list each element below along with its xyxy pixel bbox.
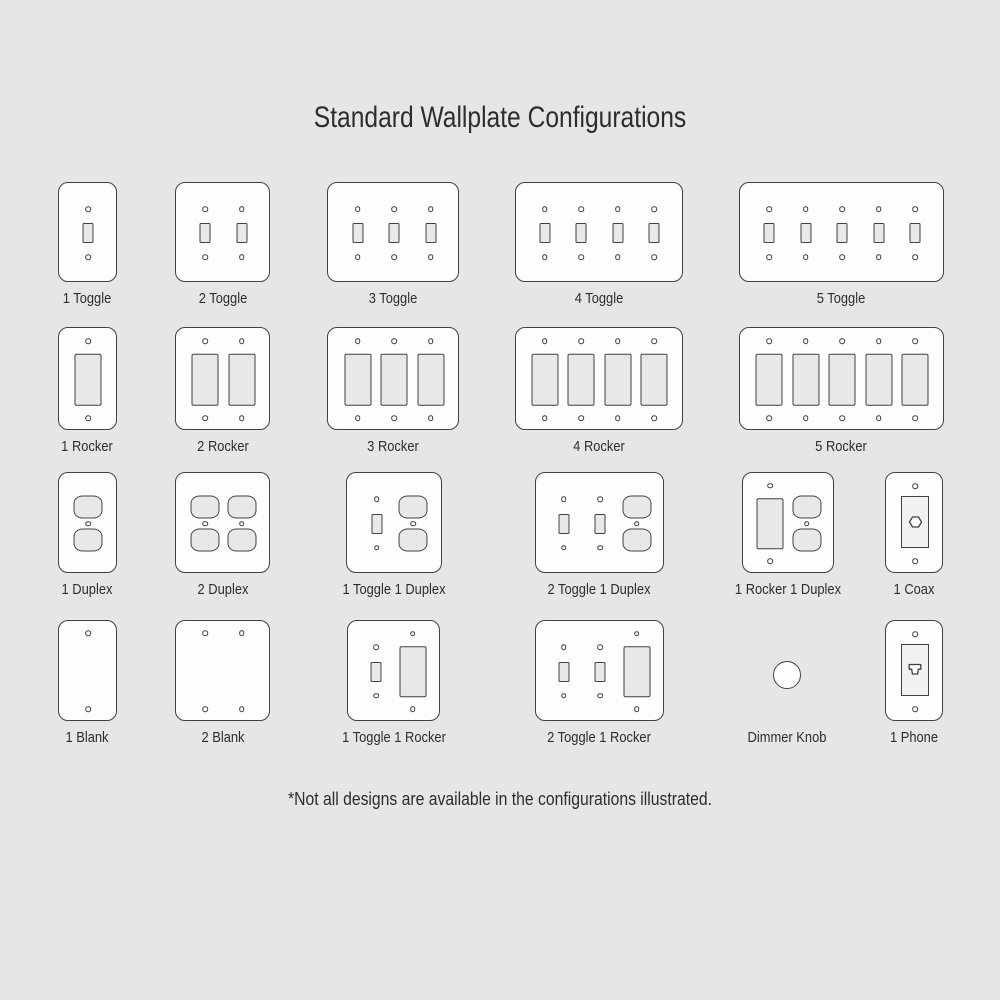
screw-hole-icon	[803, 415, 809, 421]
plate-label-2-toggle-1-duplex: 2 Toggle 1 Duplex	[504, 581, 693, 598]
screw-hole-icon	[391, 254, 397, 260]
screw-hole-icon	[542, 415, 548, 421]
toggle-switch	[764, 223, 775, 243]
wallplate-1-toggle	[58, 182, 117, 282]
screw-hole-icon	[597, 496, 603, 502]
plate-label-5-toggle: 5 Toggle	[746, 290, 935, 307]
screw-hole-icon	[803, 206, 809, 212]
screw-hole-icon	[373, 693, 379, 699]
screw-hole-icon	[615, 338, 621, 344]
screw-hole-icon	[85, 254, 91, 260]
rocker-switch	[417, 353, 444, 406]
duplex-outlet-bottom	[74, 529, 103, 552]
plate-label-3-rocker: 3 Rocker	[298, 438, 487, 455]
screw-hole-icon	[202, 707, 208, 713]
screw-hole-icon	[766, 338, 772, 344]
screw-hole-icon	[239, 707, 245, 713]
rocker-switch	[344, 353, 371, 406]
screw-hole-icon	[355, 338, 361, 344]
toggle-switch	[800, 223, 811, 243]
duplex-outlet-top	[792, 496, 821, 519]
screw-hole-icon	[912, 415, 918, 421]
screw-hole-icon	[839, 415, 845, 421]
plate-label-1-phone: 1 Phone	[819, 729, 1000, 746]
plate-label-2-toggle-1-rocker: 2 Toggle 1 Rocker	[504, 729, 693, 746]
screw-hole-icon	[597, 644, 603, 650]
screw-hole-icon	[597, 545, 603, 551]
wallplate-5-rocker	[739, 327, 944, 430]
screw-hole-icon	[391, 338, 397, 344]
plate-label-4-rocker: 4 Rocker	[504, 438, 693, 455]
screw-hole-icon	[912, 338, 918, 344]
coax-insert	[901, 496, 929, 548]
screw-hole-icon	[804, 521, 810, 527]
screw-hole-icon	[374, 496, 380, 502]
screw-hole-icon	[202, 415, 208, 421]
screw-hole-icon	[839, 338, 845, 344]
rocker-switch	[531, 353, 558, 406]
rocker-switch	[902, 353, 929, 406]
screw-hole-icon	[651, 338, 657, 344]
wallplate-1-phone	[885, 620, 943, 721]
wallplate-1-rocker	[58, 327, 117, 430]
toggle-switch	[558, 662, 569, 682]
screw-hole-icon	[239, 254, 245, 260]
screw-hole-icon	[542, 254, 548, 260]
screw-hole-icon	[85, 338, 91, 344]
toggle-switch	[352, 223, 363, 243]
plate-label-1-toggle-1-rocker: 1 Toggle 1 Rocker	[299, 729, 488, 746]
duplex-outlet-bottom	[792, 529, 821, 552]
toggle-switch	[236, 223, 247, 243]
toggle-switch	[910, 223, 921, 243]
wallplate-1-duplex	[58, 472, 117, 573]
screw-hole-icon	[239, 206, 245, 212]
screw-hole-icon	[202, 630, 208, 636]
screw-hole-icon	[561, 644, 567, 650]
duplex-outlet-top	[227, 496, 256, 519]
screw-hole-icon	[428, 206, 434, 212]
screw-hole-icon	[651, 254, 657, 260]
wallplate-1-toggle-1-duplex	[346, 472, 442, 573]
screw-hole-icon	[578, 415, 584, 421]
screw-hole-icon	[876, 254, 882, 260]
screw-hole-icon	[651, 206, 657, 212]
toggle-switch	[371, 662, 382, 682]
plate-label-1-toggle-1-duplex: 1 Toggle 1 Duplex	[299, 581, 488, 598]
screw-hole-icon	[578, 254, 584, 260]
rocker-switch	[756, 353, 783, 406]
screw-hole-icon	[202, 254, 208, 260]
duplex-outlet-top	[399, 496, 428, 519]
screw-hole-icon	[239, 338, 245, 344]
coax-connector-icon	[908, 515, 923, 529]
wallplate-2-rocker	[175, 327, 270, 430]
screw-hole-icon	[615, 415, 621, 421]
screw-hole-icon	[85, 707, 91, 713]
diagram-title: Standard Wallplate Configurations	[90, 101, 910, 134]
plate-label-3-toggle: 3 Toggle	[298, 290, 487, 307]
screw-hole-icon	[202, 338, 208, 344]
screw-hole-icon	[578, 206, 584, 212]
screw-hole-icon	[615, 254, 621, 260]
wallplate-configurations-diagram: Standard Wallplate Configurations 1 Togg…	[0, 0, 1000, 1000]
screw-hole-icon	[634, 631, 640, 637]
wallplate-2-duplex	[175, 472, 270, 573]
screw-hole-icon	[391, 206, 397, 212]
screw-hole-icon	[202, 206, 208, 212]
wallplate-2-toggle-1-duplex	[535, 472, 664, 573]
screw-hole-icon	[597, 693, 603, 699]
rocker-switch	[829, 353, 856, 406]
screw-hole-icon	[912, 484, 918, 490]
screw-hole-icon	[355, 254, 361, 260]
wallplate-dimmer-knob	[773, 620, 801, 721]
toggle-switch	[83, 223, 94, 243]
wallplate-4-toggle	[515, 182, 683, 282]
rocker-switch	[75, 353, 102, 406]
rocker-switch	[381, 353, 408, 406]
toggle-switch	[649, 223, 660, 243]
screw-hole-icon	[542, 206, 548, 212]
toggle-switch	[873, 223, 884, 243]
rocker-switch	[228, 353, 255, 406]
screw-hole-icon	[239, 630, 245, 636]
screw-hole-icon	[651, 415, 657, 421]
rocker-switch	[399, 646, 426, 698]
screw-hole-icon	[428, 338, 434, 344]
screw-hole-icon	[410, 521, 416, 527]
screw-hole-icon	[202, 521, 208, 527]
toggle-switch	[576, 223, 587, 243]
screw-hole-icon	[355, 415, 361, 421]
screw-hole-icon	[561, 496, 567, 502]
phone-insert	[901, 644, 929, 696]
duplex-outlet-top	[191, 496, 220, 519]
screw-hole-icon	[876, 415, 882, 421]
screw-hole-icon	[766, 254, 772, 260]
rocker-switch	[757, 498, 784, 550]
screw-hole-icon	[912, 254, 918, 260]
screw-hole-icon	[876, 206, 882, 212]
plate-label-2-toggle: 2 Toggle	[128, 290, 317, 307]
screw-hole-icon	[410, 706, 416, 712]
screw-hole-icon	[912, 558, 918, 564]
wallplate-5-toggle	[739, 182, 944, 282]
wallplate-3-rocker	[327, 327, 459, 430]
rocker-switch	[568, 353, 595, 406]
wallplate-2-toggle	[175, 182, 270, 282]
duplex-outlet-bottom	[191, 529, 220, 552]
screw-hole-icon	[391, 415, 397, 421]
screw-hole-icon	[85, 630, 91, 636]
screw-hole-icon	[634, 521, 640, 527]
screw-hole-icon	[839, 254, 845, 260]
toggle-switch	[595, 514, 606, 534]
rocker-switch	[865, 353, 892, 406]
screw-hole-icon	[428, 415, 434, 421]
screw-hole-icon	[85, 206, 91, 212]
screw-hole-icon	[615, 206, 621, 212]
screw-hole-icon	[766, 206, 772, 212]
screw-hole-icon	[767, 558, 773, 564]
screw-hole-icon	[634, 706, 640, 712]
screw-hole-icon	[561, 693, 567, 699]
screw-hole-icon	[803, 338, 809, 344]
duplex-outlet-top	[74, 496, 103, 519]
toggle-switch	[200, 223, 211, 243]
screw-hole-icon	[542, 338, 548, 344]
screw-hole-icon	[876, 338, 882, 344]
screw-hole-icon	[428, 254, 434, 260]
wallplate-3-toggle	[327, 182, 459, 282]
dimmer-knob	[773, 661, 801, 689]
wallplate-1-coax	[885, 472, 943, 573]
plate-label-2-rocker: 2 Rocker	[128, 438, 317, 455]
plate-label-2-blank: 2 Blank	[128, 729, 317, 746]
screw-hole-icon	[85, 415, 91, 421]
screw-hole-icon	[912, 206, 918, 212]
toggle-switch	[612, 223, 623, 243]
duplex-outlet-top	[622, 496, 651, 519]
screw-hole-icon	[912, 632, 918, 638]
duplex-outlet-bottom	[399, 529, 428, 552]
duplex-outlet-bottom	[622, 529, 651, 552]
toggle-switch	[539, 223, 550, 243]
rocker-switch	[192, 353, 219, 406]
screw-hole-icon	[561, 545, 567, 551]
screw-hole-icon	[912, 706, 918, 712]
screw-hole-icon	[803, 254, 809, 260]
screw-hole-icon	[766, 415, 772, 421]
rocker-switch	[604, 353, 631, 406]
screw-hole-icon	[85, 521, 91, 527]
duplex-outlet-bottom	[227, 529, 256, 552]
plate-label-5-rocker: 5 Rocker	[746, 438, 935, 455]
screw-hole-icon	[767, 483, 773, 489]
wallplate-4-rocker	[515, 327, 683, 430]
plate-label-2-duplex: 2 Duplex	[128, 581, 317, 598]
wallplate-2-toggle-1-rocker	[535, 620, 664, 721]
wallplate-1-blank	[58, 620, 117, 721]
wallplate-2-blank	[175, 620, 270, 721]
screw-hole-icon	[410, 631, 416, 637]
toggle-switch	[425, 223, 436, 243]
screw-hole-icon	[373, 644, 379, 650]
screw-hole-icon	[578, 338, 584, 344]
screw-hole-icon	[374, 545, 380, 551]
toggle-switch	[595, 662, 606, 682]
rocker-switch	[623, 646, 650, 698]
footnote-text: *Not all designs are available in the co…	[75, 788, 925, 810]
screw-hole-icon	[239, 415, 245, 421]
phone-jack-icon	[907, 663, 923, 677]
screw-hole-icon	[355, 206, 361, 212]
toggle-switch	[837, 223, 848, 243]
plate-label-1-coax: 1 Coax	[819, 581, 1000, 598]
wallplate-1-rocker-1-duplex	[742, 472, 834, 573]
plate-label-4-toggle: 4 Toggle	[504, 290, 693, 307]
toggle-switch	[371, 514, 382, 534]
toggle-switch	[558, 514, 569, 534]
toggle-switch	[389, 223, 400, 243]
wallplate-1-toggle-1-rocker	[347, 620, 440, 721]
rocker-switch	[641, 353, 668, 406]
screw-hole-icon	[839, 206, 845, 212]
rocker-switch	[792, 353, 819, 406]
screw-hole-icon	[239, 521, 245, 527]
